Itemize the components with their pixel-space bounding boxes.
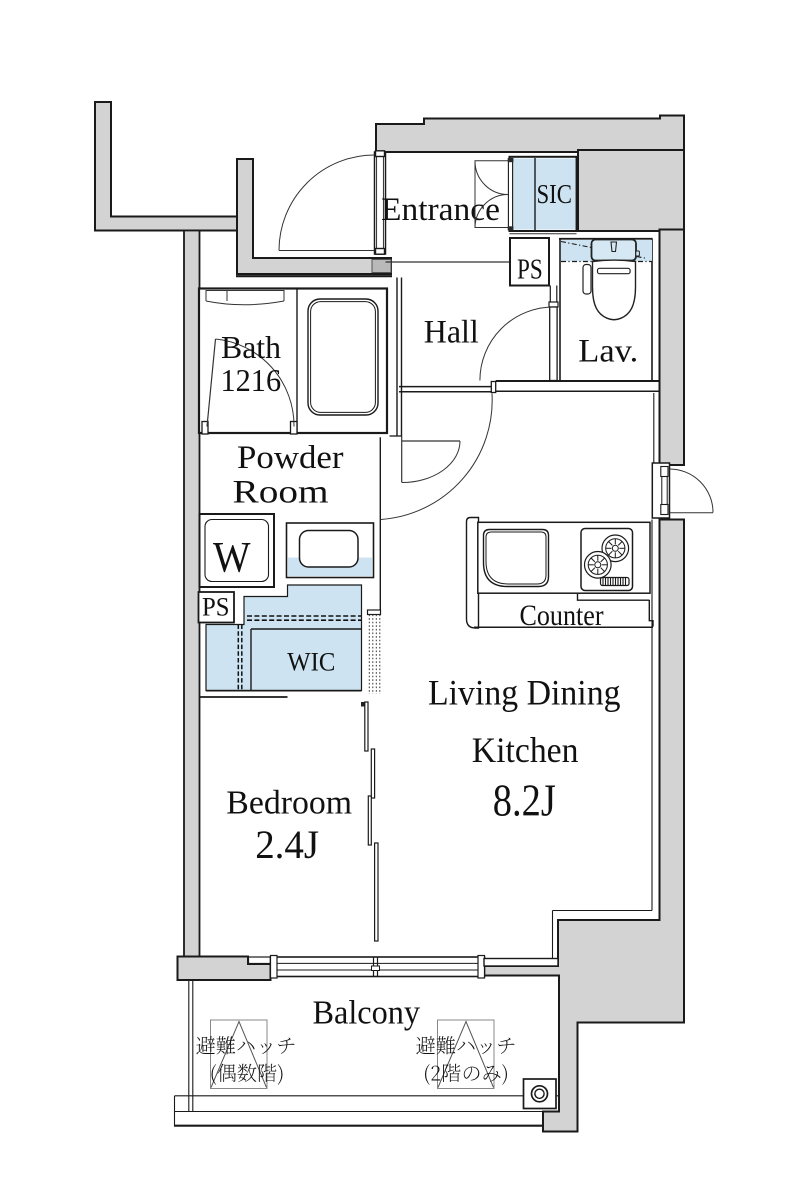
svg-text:Entrance: Entrance bbox=[381, 192, 500, 228]
svg-text:W: W bbox=[213, 535, 251, 582]
svg-text:PS: PS bbox=[517, 254, 543, 286]
svg-text:2.4J: 2.4J bbox=[255, 822, 319, 867]
svg-text:Living Dining: Living Dining bbox=[428, 673, 621, 713]
svg-text:Bath: Bath bbox=[221, 329, 281, 365]
svg-text:Kitchen: Kitchen bbox=[472, 730, 579, 770]
svg-text:Hall: Hall bbox=[424, 315, 479, 351]
svg-text:8.2J: 8.2J bbox=[493, 776, 556, 826]
svg-text:Lav.: Lav. bbox=[578, 334, 638, 370]
svg-text:Balcony: Balcony bbox=[313, 995, 421, 1032]
svg-text:Powder: Powder bbox=[237, 440, 344, 476]
svg-text:Bedroom: Bedroom bbox=[226, 785, 352, 822]
svg-text:PS: PS bbox=[202, 592, 230, 621]
svg-text:Room: Room bbox=[233, 475, 329, 511]
svg-text:Counter: Counter bbox=[520, 599, 604, 632]
svg-text:1216: 1216 bbox=[221, 362, 282, 398]
svg-text:SIC: SIC bbox=[537, 179, 573, 209]
svg-text:WIC: WIC bbox=[287, 647, 335, 676]
